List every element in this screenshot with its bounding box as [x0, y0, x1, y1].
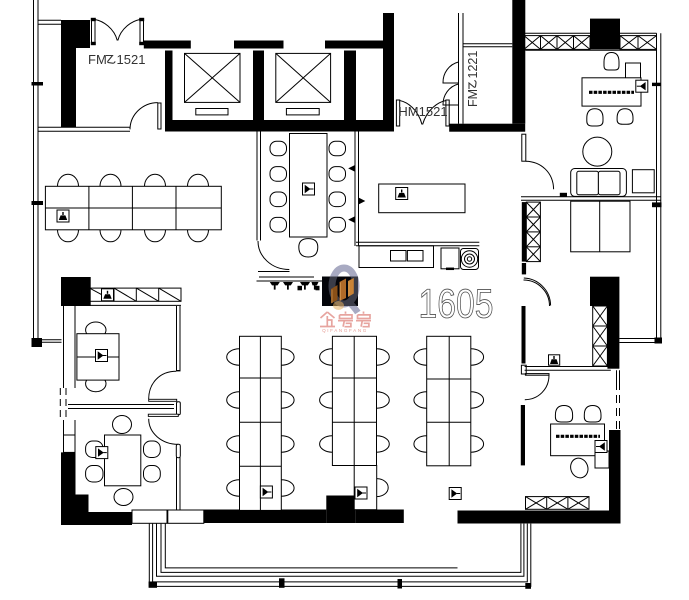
svg-text:QIFANGFANG: QIFANGFANG [322, 328, 368, 333]
svg-text:HM1521: HM1521 [398, 104, 447, 119]
svg-text:1605: 1605 [419, 281, 494, 327]
svg-text:FM: FM [466, 89, 480, 107]
svg-text:1521: 1521 [117, 52, 146, 67]
svg-text:1221: 1221 [466, 51, 480, 79]
svg-text:FM: FM [88, 52, 107, 67]
